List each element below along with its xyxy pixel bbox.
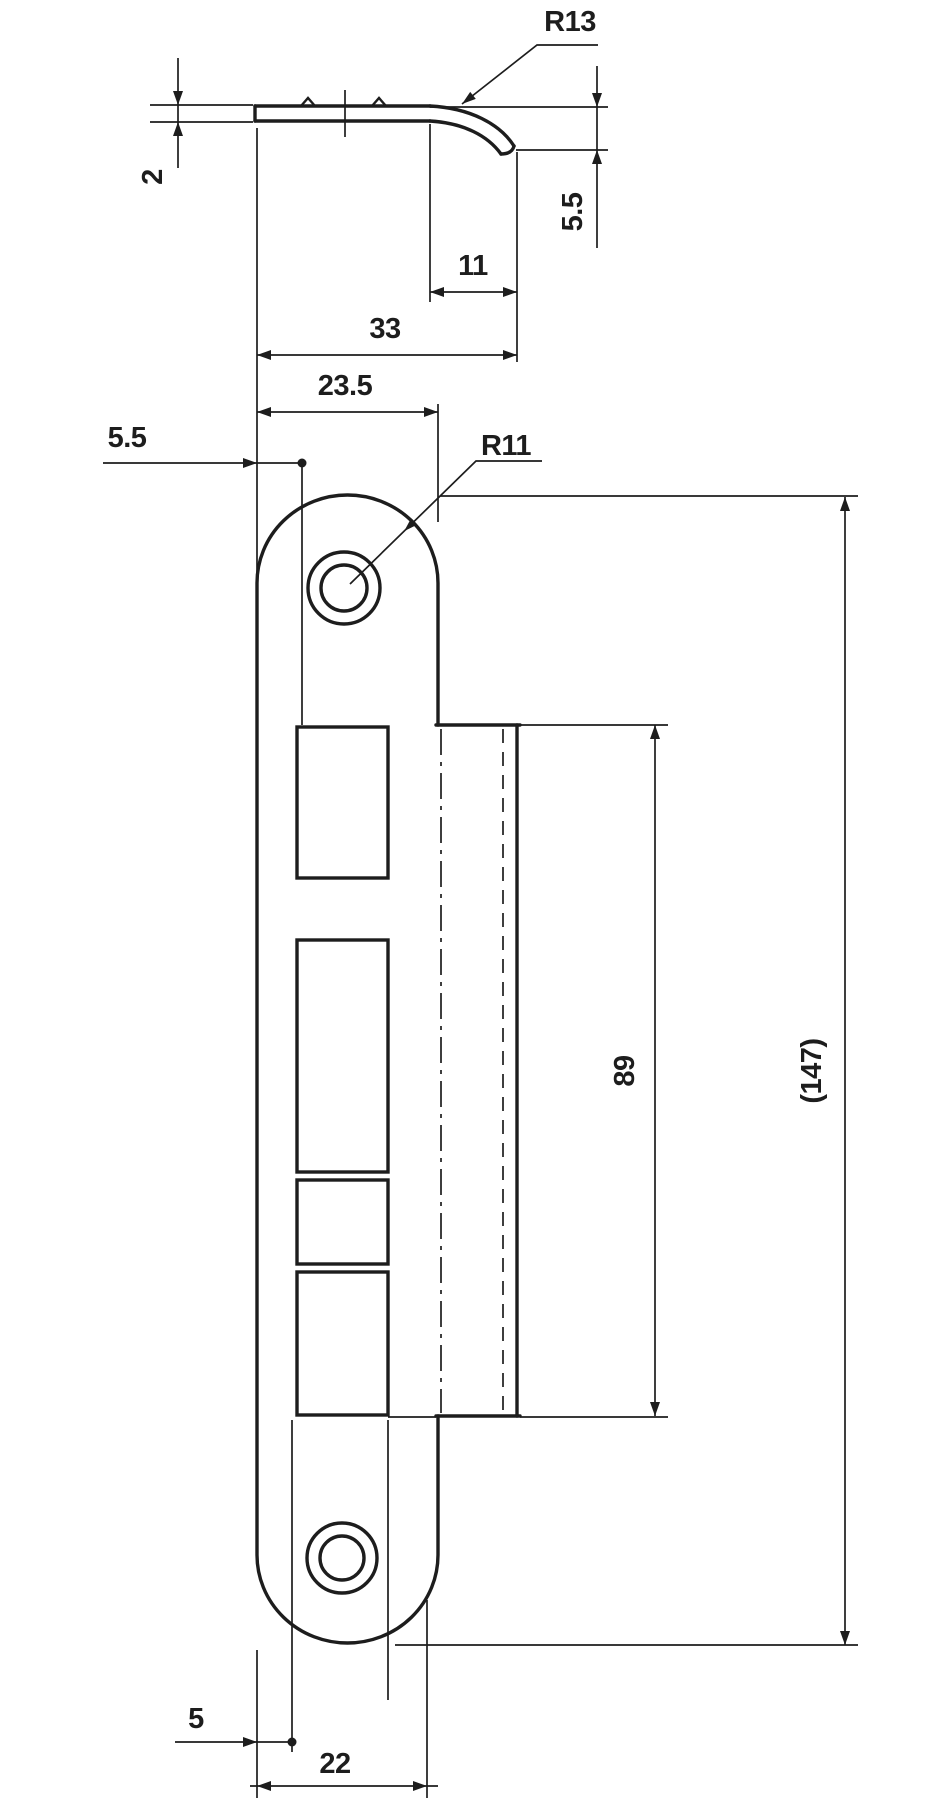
center-cutout	[297, 940, 388, 1172]
dim-thickness-label: 2	[137, 169, 169, 185]
lip-tip-edge	[501, 146, 514, 154]
arrowhead	[257, 407, 271, 417]
deadbolt-cutout	[297, 1272, 388, 1415]
bottom-screw-hole-outer	[307, 1523, 377, 1593]
arrowhead	[592, 93, 602, 107]
arrowhead	[257, 350, 271, 360]
top-screw-hole-inner	[321, 565, 367, 611]
arrowhead	[503, 287, 517, 297]
leader-line	[462, 45, 598, 104]
arrowhead	[243, 1737, 257, 1747]
arrowhead	[430, 287, 444, 297]
arrowhead	[424, 407, 438, 417]
arrowhead	[650, 1402, 660, 1416]
lip-inner-curve	[430, 121, 501, 154]
dim-plate-width-label: 23.5	[318, 370, 373, 402]
dim-overall-depth-label: 33	[369, 313, 401, 345]
faceplate-outline	[257, 495, 438, 1643]
front-view: 23.5 5.5 R11 89 (147) 5	[103, 370, 858, 1798]
strike-plate-drawing: R13 2 5.5 11 33	[0, 0, 941, 1800]
arrowhead	[173, 91, 183, 105]
arrowhead	[243, 458, 257, 468]
technical-drawing-sheet: R13 2 5.5 11 33	[0, 0, 941, 1800]
arrowhead	[840, 497, 850, 511]
dim-lip-projection-label: 11	[458, 250, 488, 282]
dim-bottom-width-label: 22	[319, 1748, 350, 1780]
dim-corner-radius-label: R11	[481, 430, 531, 462]
arrowhead	[503, 350, 517, 360]
arrowhead	[840, 1631, 850, 1645]
dim-lip-length-label: 89	[609, 1055, 641, 1087]
top-screw-hole-outer	[308, 552, 380, 624]
arrowhead	[650, 725, 660, 739]
dim-overall-length-label: (147)	[796, 1038, 828, 1103]
small-cutout	[297, 1180, 388, 1264]
arrowhead	[592, 150, 602, 164]
section-view: R13 2 5.5 11 33	[137, 6, 608, 578]
dim-lip-height-label: 5.5	[557, 192, 589, 231]
bottom-screw-hole-inner	[320, 1536, 364, 1580]
arrowhead	[413, 1781, 427, 1791]
dim-lip-radius-label: R13	[544, 6, 596, 38]
leader-dot	[288, 1738, 297, 1747]
dim-bottom-offset-label: 5	[188, 1703, 204, 1735]
lip-outer-curve	[430, 106, 514, 146]
leader-line	[350, 461, 542, 584]
arrowhead	[257, 1781, 271, 1791]
latch-cutout	[297, 727, 388, 878]
dim-edge-offset-label: 5.5	[108, 422, 147, 454]
arrowhead	[173, 122, 183, 136]
